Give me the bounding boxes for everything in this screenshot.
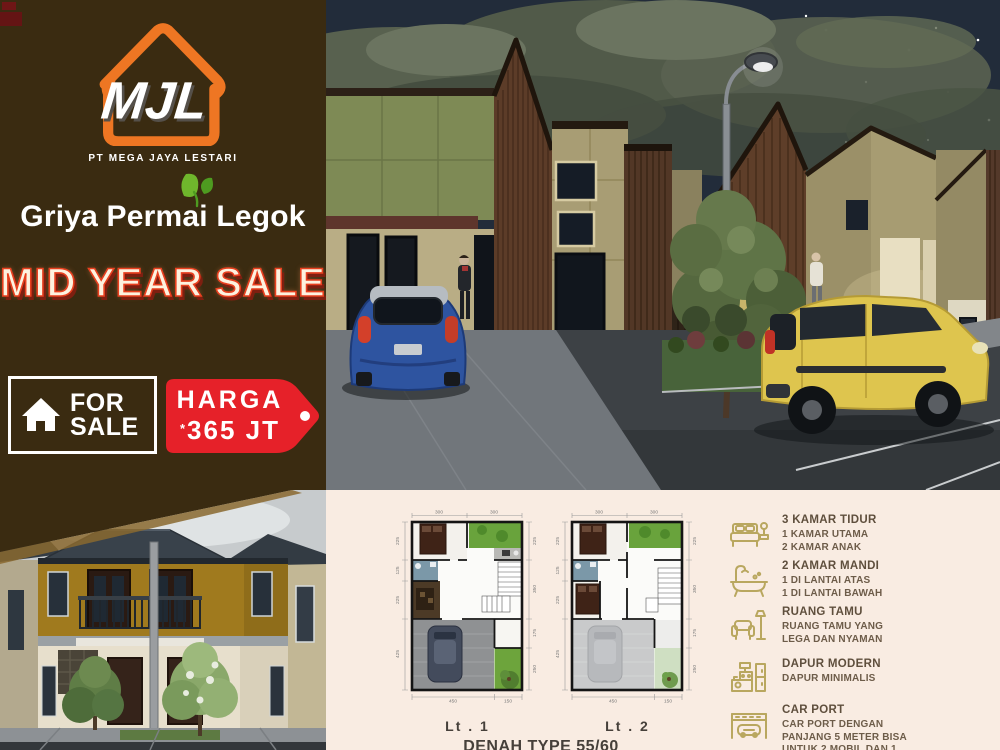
tag-hole [300,411,310,421]
company-name: PT MEGA JAYA LESTARI [0,153,326,164]
plan-tree [662,672,678,688]
svg-text:225: 225 [532,537,538,545]
plan-label-lt1: Lt . 1 [390,718,545,734]
for-sale-badge: FOR SALE [8,376,157,454]
for-sale-line1: FOR [70,391,139,415]
promo-headline: MID YEAR SALE [0,261,326,306]
price-label: HARGA [176,386,283,414]
price-value: *365 JT [180,415,280,445]
corner-artifact [2,2,16,10]
car-top-view [428,626,462,682]
svg-text:225: 225 [692,537,698,545]
plan-caption: DENAH TYPE 55/60 [441,738,641,750]
bathtub-icon [728,560,770,602]
company-logo: MJL PT MEGA JAYA LESTARI [0,18,326,164]
svg-text:350: 350 [692,585,698,593]
feature-title: 2 KAMAR MANDI [782,560,882,572]
sofa-icon [728,606,770,648]
feature-bathrooms: 2 KAMAR MANDI 1 DI LANTAI ATAS 1 DI LANT… [728,560,993,602]
logo-monogram: MJL [99,72,210,131]
feature-title: 3 KAMAR TIDUR [782,514,877,526]
svg-text:425: 425 [395,650,401,658]
svg-text:225: 225 [555,537,561,545]
feature-desc: CAR PORT DENGAN PANJANG 5 METER BISA UNT… [782,719,907,750]
svg-text:225: 225 [395,537,401,545]
feature-livingroom: RUANG TAMU RUANG TAMU YANG LEGA DAN NYAM… [728,606,993,648]
flyer-poster: MJL PT MEGA JAYA LESTARI Griya Permai Le… [0,0,1000,750]
feature-desc: RUANG TAMU YANG LEGA DAN NYAMAN [782,621,883,646]
svg-text:250: 250 [692,665,698,673]
feature-desc: 1 KAMAR UTAMA 2 KAMAR ANAK [782,529,877,554]
feature-kitchen: DAPUR MODERN DAPUR MINIMALIS [728,658,993,700]
svg-text:225: 225 [395,596,401,604]
svg-text:450: 450 [609,699,617,705]
feature-title: DAPUR MODERN [782,658,881,670]
house-logo-icon: MJL [88,18,238,146]
sidebar: MJL PT MEGA JAYA LESTARI Griya Permai Le… [0,0,326,490]
hero-night-render [326,0,1000,490]
svg-text:250: 250 [532,665,538,673]
project-title: Griya Permai Legok [0,200,326,234]
svg-text:175: 175 [692,629,698,637]
feature-bedrooms: 3 KAMAR TIDUR 1 KAMAR UTAMA 2 KAMAR ANAK [728,514,993,556]
floorplan-lt2: 300 300 225 125 225 425 225 350 175 250 … [550,508,705,718]
svg-text:150: 150 [504,699,512,705]
bed-icon [728,514,770,556]
plan-label-lt2: Lt . 2 [550,718,705,734]
kitchen-icon [728,658,770,700]
svg-text:225: 225 [555,596,561,604]
for-sale-line2: SALE [70,415,139,439]
floorplan-panel: 300 300 225 125 225 425 225 350 175 250 … [326,490,1000,750]
house-icon [21,396,61,434]
svg-text:300: 300 [490,510,498,516]
floorplan-lt1: 300 300 225 125 225 425 225 350 175 250 … [390,508,545,718]
svg-text:300: 300 [435,510,443,516]
carport-icon [728,704,770,746]
feature-title: RUANG TAMU [782,606,883,618]
house-photo [0,490,326,750]
svg-text:300: 300 [650,510,658,516]
feature-carport: CAR PORT CAR PORT DENGAN PANJANG 5 METER… [728,704,993,750]
ground [0,728,326,750]
feature-title: CAR PORT [782,704,907,716]
price-tag: HARGA *365 JT [162,376,320,456]
svg-text:300: 300 [595,510,603,516]
svg-text:125: 125 [395,566,401,574]
svg-text:175: 175 [532,629,538,637]
svg-text:450: 450 [449,699,457,705]
row-houses [0,530,326,740]
svg-text:150: 150 [664,699,672,705]
svg-text:125: 125 [555,566,561,574]
car-top-view-ghost [588,626,622,682]
svg-text:350: 350 [532,585,538,593]
feature-desc: DAPUR MINIMALIS [782,673,881,686]
feature-desc: 1 DI LANTAI ATAS 1 DI LANTAI BAWAH [782,575,882,600]
svg-text:425: 425 [555,650,561,658]
